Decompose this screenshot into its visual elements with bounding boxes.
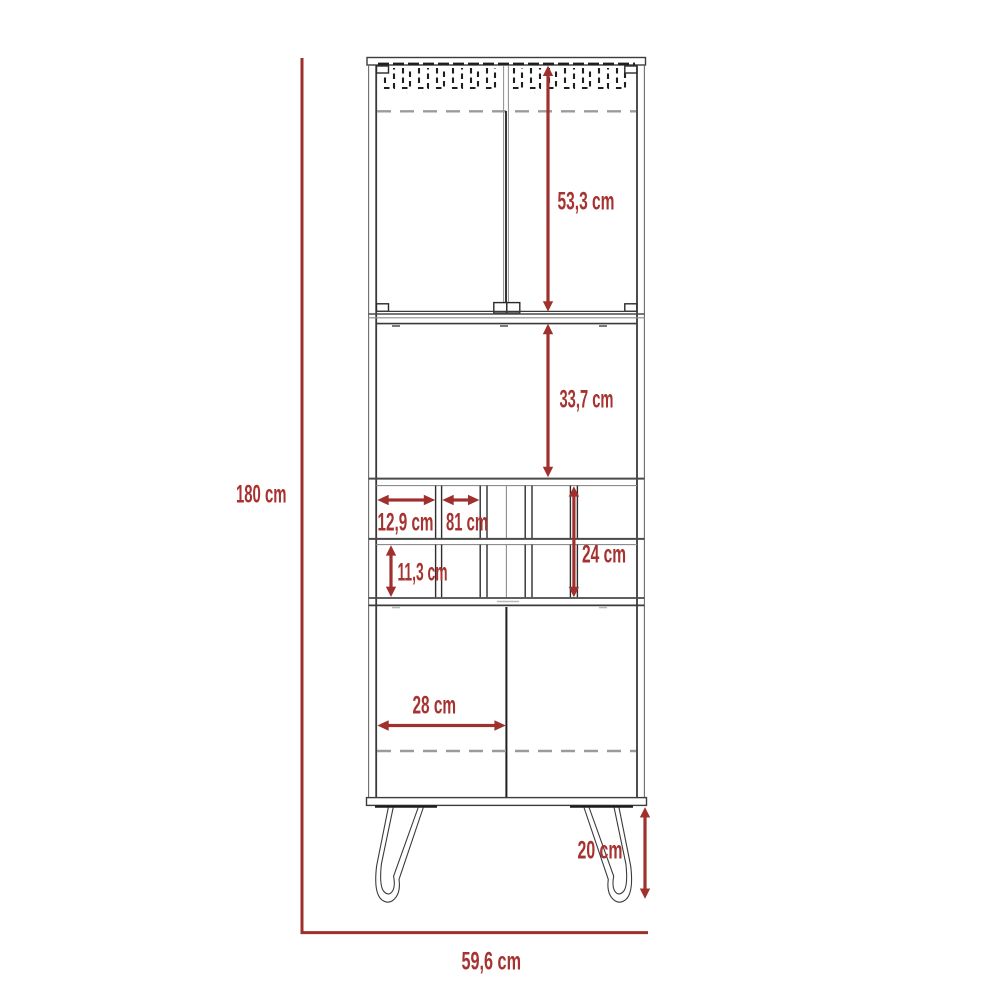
svg-text:12,9 cm: 12,9 cm — [378, 509, 434, 537]
svg-text:81 cm: 81 cm — [446, 509, 488, 537]
svg-text:24 cm: 24 cm — [582, 541, 626, 569]
svg-text:20 cm: 20 cm — [578, 837, 623, 865]
svg-text:59,6 cm: 59,6 cm — [462, 948, 522, 976]
svg-text:33,7 cm: 33,7 cm — [560, 386, 614, 414]
svg-text:11,3 cm: 11,3 cm — [398, 559, 448, 587]
svg-text:28 cm: 28 cm — [413, 692, 457, 720]
svg-text:53,3 cm: 53,3 cm — [558, 188, 615, 216]
svg-text:180 cm: 180 cm — [236, 481, 287, 509]
